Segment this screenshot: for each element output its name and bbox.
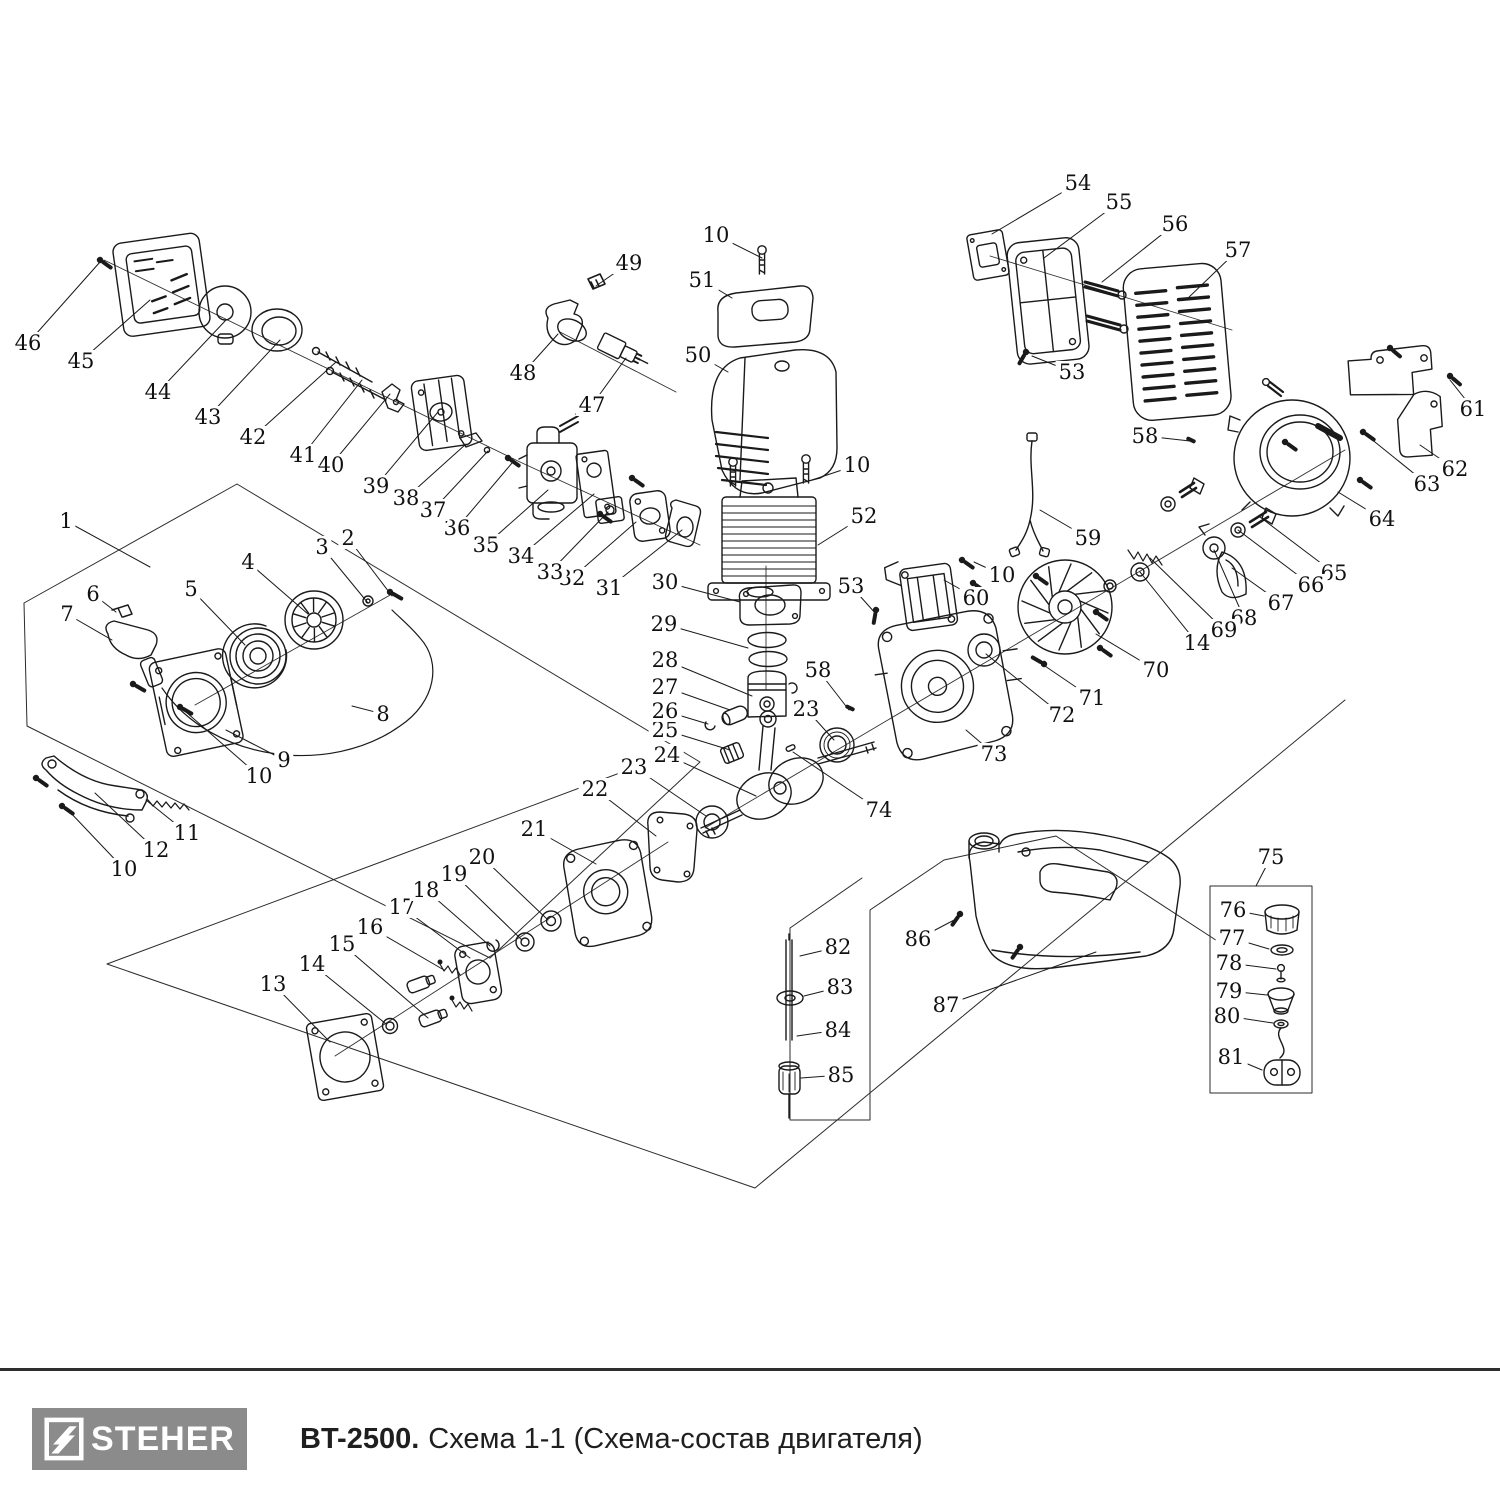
schema-name: Схема 1-1 (Схема-состав двигателя)	[428, 1423, 922, 1456]
carburetor-intake-group	[519, 411, 701, 546]
ignition-coil-group	[884, 433, 1050, 633]
air-filter-group	[96, 232, 523, 469]
diagram-area: 1234567891010101010111213141415161718192…	[0, 0, 1500, 1368]
schema-title: BT-2500. Схема 1-1 (Схема-состав двигате…	[300, 1408, 923, 1470]
crankcase-left-group	[561, 812, 697, 949]
clutch-drum-bracket-group	[32, 756, 189, 822]
fan-cover-group	[1228, 343, 1464, 516]
flywheel-clutch-group	[1018, 478, 1276, 654]
recoil-starter-group	[106, 588, 433, 758]
schematic-page: 1234567891010101010111213141415161718192…	[0, 0, 1500, 1500]
brand-name: STEHER	[91, 1420, 235, 1459]
footer-bar: STEHER BT-2500. Схема 1-1 (Схема-состав …	[0, 1368, 1500, 1500]
spark-plug-group	[546, 274, 652, 371]
engine-cover-group	[712, 246, 837, 494]
model-number: BT-2500.	[300, 1423, 419, 1456]
region-outlines	[24, 484, 1345, 1188]
engine-mount-group	[306, 911, 561, 1101]
piston-crank-group	[696, 585, 876, 838]
crankcase-right-group	[845, 572, 1114, 765]
brand-logo: STEHER	[32, 1408, 247, 1470]
exploded-view-drawing	[0, 0, 1500, 1368]
breather-kit-group	[1264, 905, 1300, 1085]
steher-logo-icon	[44, 1417, 84, 1461]
leader-lines	[28, 183, 1473, 1078]
